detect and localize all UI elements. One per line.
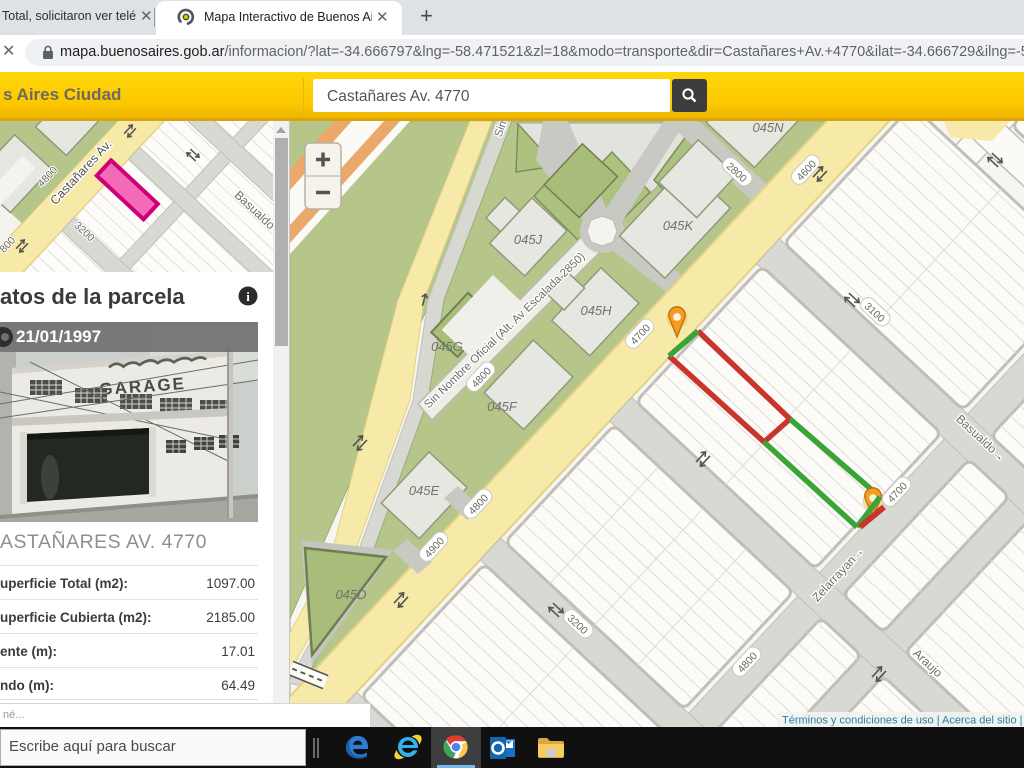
svg-text:045K: 045K bbox=[663, 218, 695, 233]
svg-text:Términos y condiciones de uso: Términos y condiciones de uso | Acerca d… bbox=[782, 715, 1024, 727]
svg-text:045F: 045F bbox=[487, 399, 518, 414]
svg-text:045E: 045E bbox=[409, 483, 440, 498]
svg-text:045N: 045N bbox=[752, 121, 784, 135]
svg-text:045G: 045G bbox=[431, 339, 463, 354]
svg-text:045D: 045D bbox=[335, 587, 366, 602]
svg-text:045J: 045J bbox=[514, 232, 543, 247]
svg-text:045H: 045H bbox=[580, 303, 612, 318]
svg-text:i: i bbox=[246, 289, 250, 304]
